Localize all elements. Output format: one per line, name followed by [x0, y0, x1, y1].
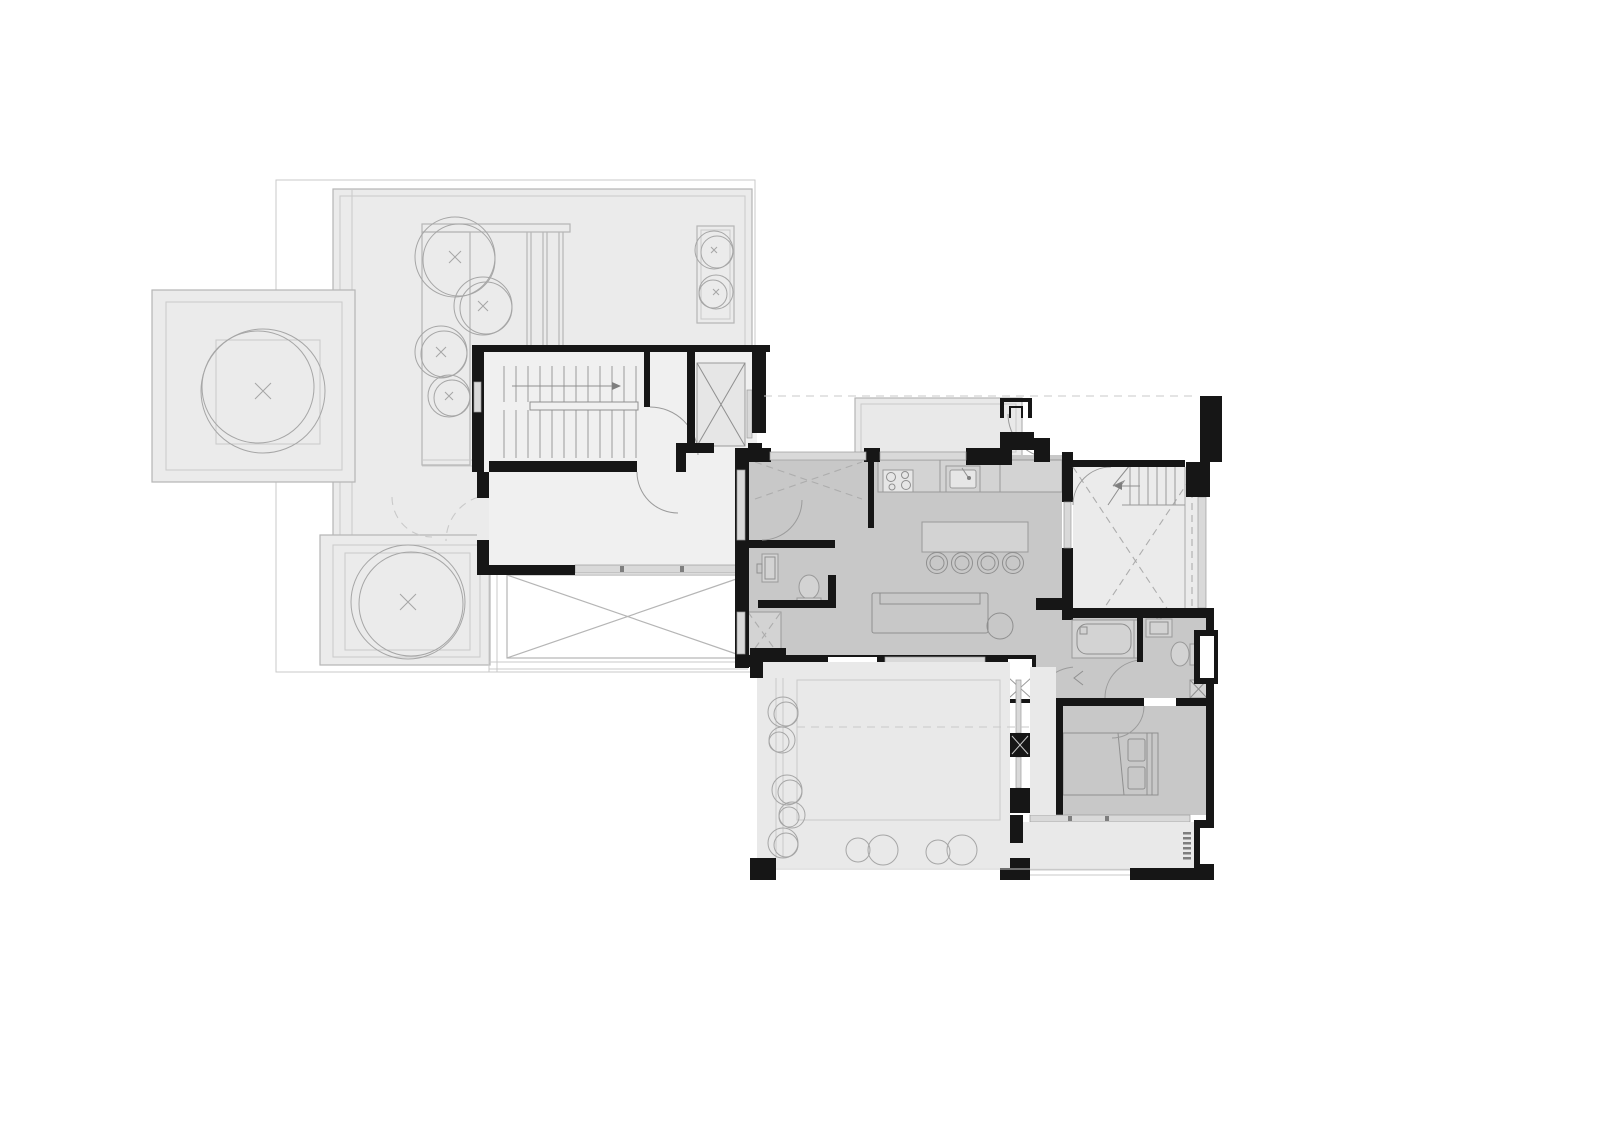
window-band [737, 612, 745, 654]
hall-door-opening [477, 497, 489, 540]
wall [687, 352, 695, 444]
wash-basin [762, 554, 778, 582]
wall [472, 345, 770, 352]
stair-core [472, 345, 770, 575]
kitchen-window-band [880, 452, 966, 460]
interior-window [1064, 502, 1071, 548]
wall-pillar [1200, 396, 1222, 462]
wall [750, 858, 776, 880]
core-window [474, 382, 481, 412]
wall-pillar [1186, 462, 1210, 497]
wall [1137, 618, 1143, 662]
wall-opening [1200, 828, 1214, 864]
toilet [799, 575, 819, 599]
wall-fin [868, 458, 874, 528]
hall-window-band [575, 565, 752, 573]
wall [477, 472, 489, 498]
wall-band [1198, 497, 1206, 608]
bedroom-window-band [1030, 815, 1190, 822]
window-band [1016, 757, 1021, 788]
wall [966, 448, 1012, 465]
wall [1073, 460, 1185, 467]
wall-pillar [1010, 788, 1030, 813]
balcony-floor [1005, 822, 1206, 868]
floor-plan-sheet [0, 0, 1600, 1131]
elevator-door [747, 390, 752, 438]
wall [758, 600, 835, 608]
elevator [697, 363, 752, 446]
wall [1063, 608, 1214, 618]
wall [1000, 432, 1034, 450]
wall [1034, 438, 1050, 462]
niche-opening [1200, 636, 1214, 678]
wall [676, 453, 686, 472]
wall [489, 565, 575, 575]
wall [752, 345, 766, 433]
balcony [1000, 815, 1214, 880]
window-band [737, 470, 745, 540]
wall [1062, 452, 1073, 502]
wall [477, 540, 489, 575]
kitchen-window-band [770, 452, 866, 460]
wall [748, 540, 835, 548]
wall [750, 648, 763, 678]
window-band [1016, 680, 1021, 733]
wall [489, 461, 637, 472]
kitchen-island [922, 522, 1028, 552]
floor-plan-drawing [0, 0, 1600, 1131]
wall [1176, 698, 1214, 706]
wall [1056, 698, 1063, 822]
square-planter-south [320, 535, 490, 665]
wall [644, 351, 650, 407]
toilet [1171, 642, 1189, 666]
square-planter-west [152, 290, 355, 482]
bedroom [1030, 698, 1214, 833]
edge-strip [1030, 667, 1056, 815]
wall [1056, 698, 1144, 706]
wall [676, 443, 714, 453]
